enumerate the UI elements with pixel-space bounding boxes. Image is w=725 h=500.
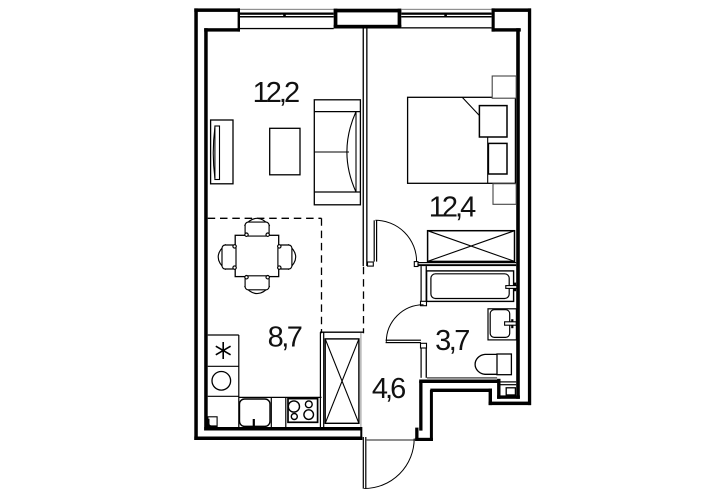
svg-text:12,4: 12,4 <box>429 192 476 224</box>
svg-text:8,7: 8,7 <box>268 321 302 353</box>
svg-text:4,6: 4,6 <box>372 373 405 405</box>
svg-text:12,2: 12,2 <box>253 77 299 109</box>
svg-text:3,7: 3,7 <box>435 325 469 357</box>
